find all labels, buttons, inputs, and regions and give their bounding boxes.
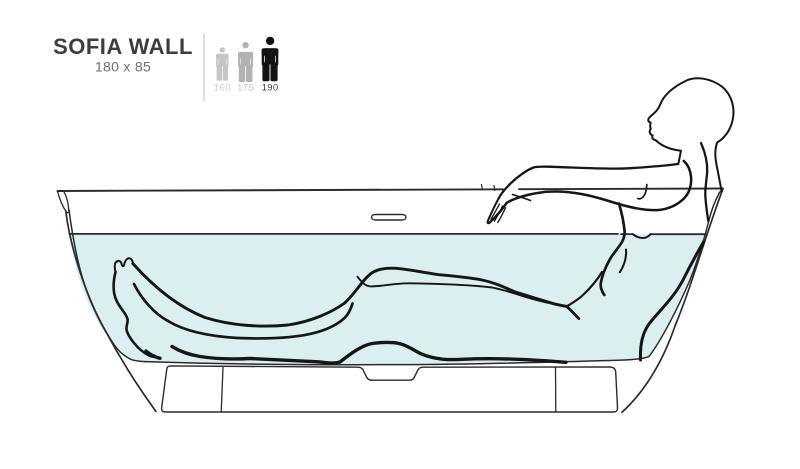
svg-text:160: 160 [214,83,231,94]
svg-text:190: 190 [262,83,279,94]
svg-text:180 x 85: 180 x 85 [95,59,151,75]
svg-text:SOFIA WALL: SOFIA WALL [53,34,193,59]
svg-text:175: 175 [237,83,254,94]
